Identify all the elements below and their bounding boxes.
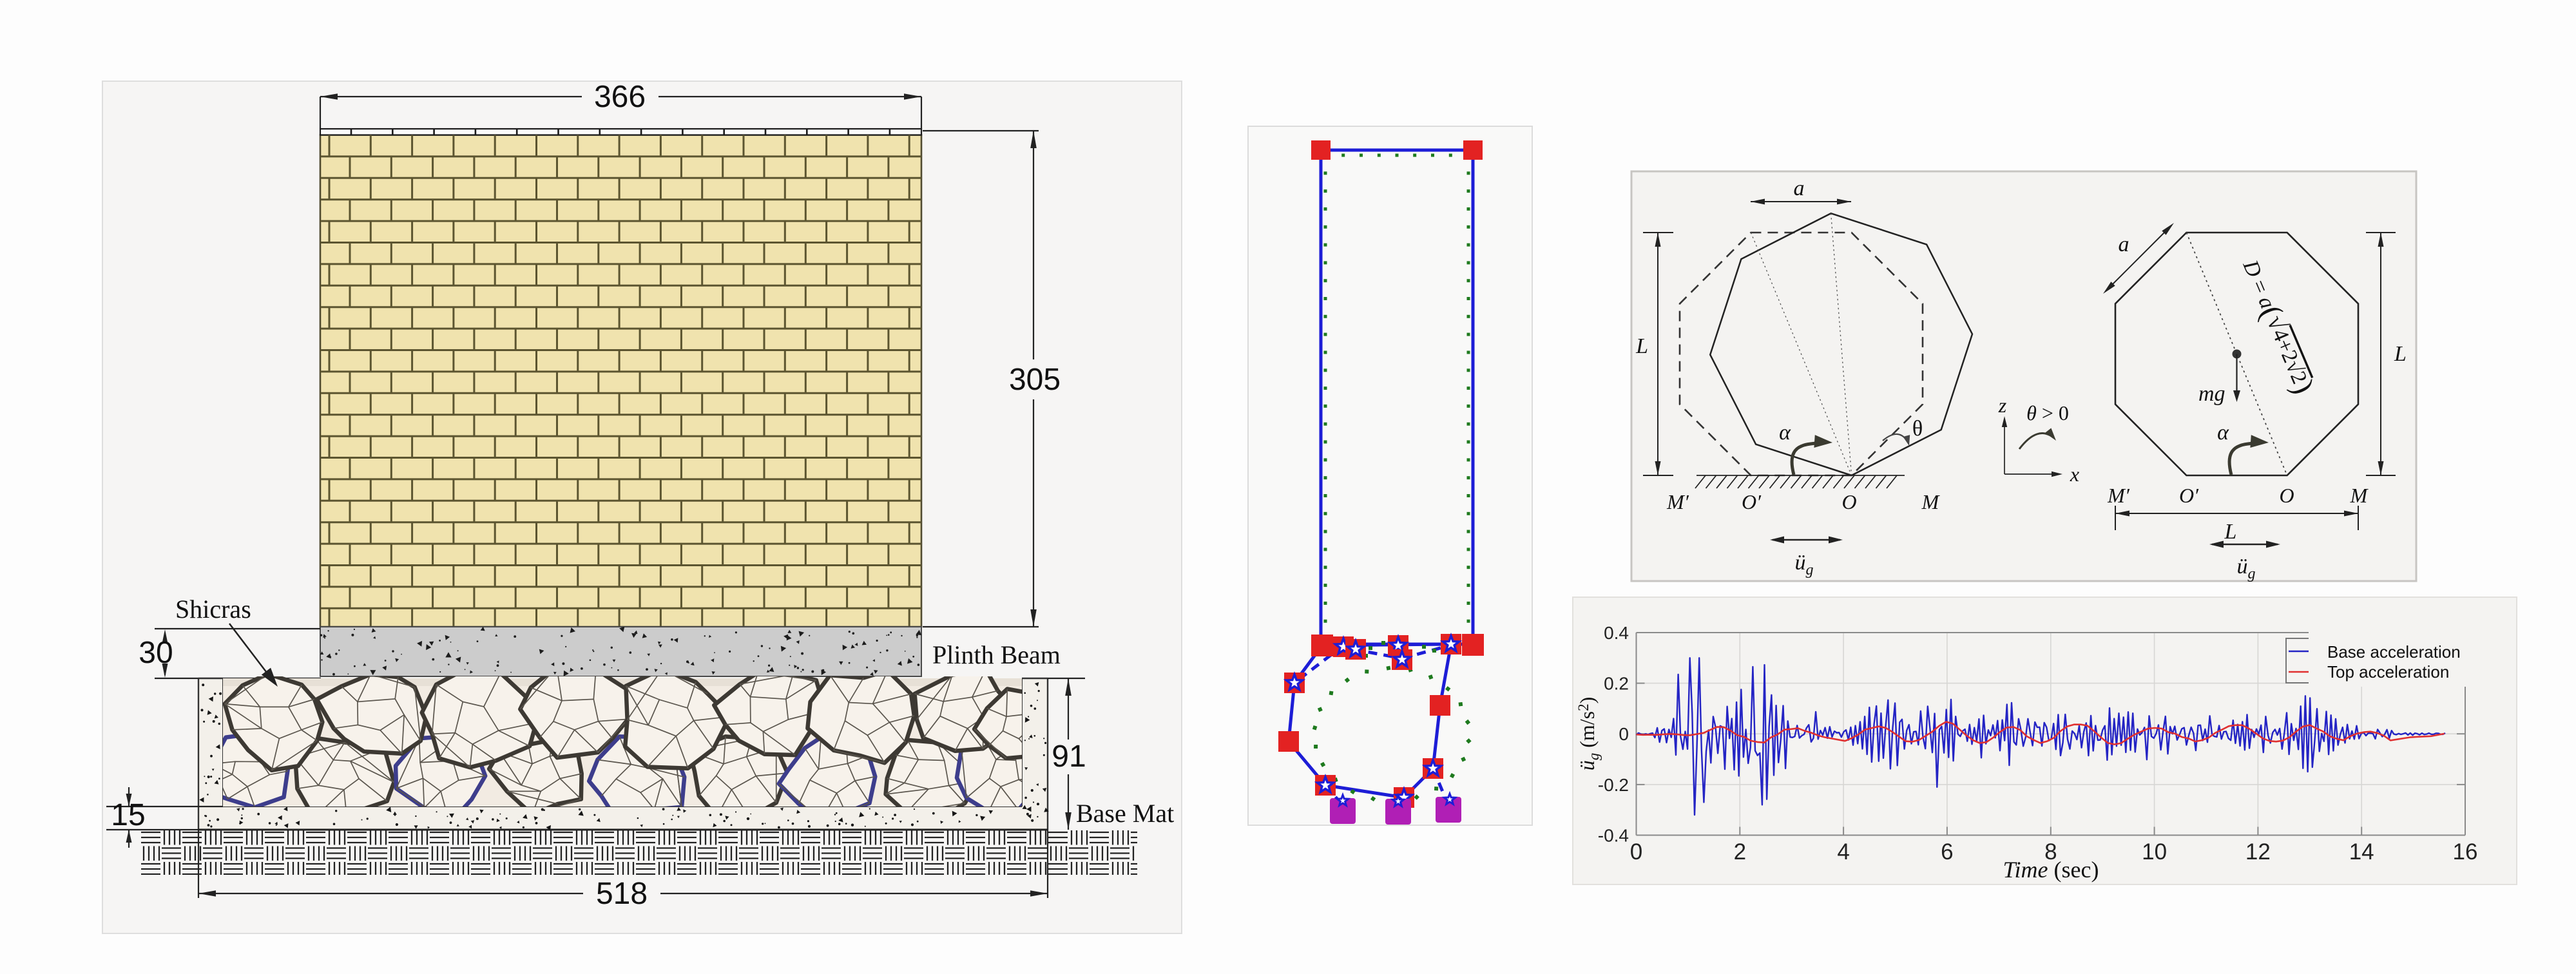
svg-text:0.4: 0.4 <box>1604 623 1629 643</box>
svg-text:Plinth Beam: Plinth Beam <box>932 640 1061 669</box>
svg-text:6: 6 <box>1941 839 1953 864</box>
svg-text:θ: θ <box>1912 417 1923 441</box>
svg-text:M: M <box>2350 484 2369 507</box>
svg-text:O: O <box>1841 490 1856 513</box>
svg-text:Base Mat: Base Mat <box>1076 799 1174 828</box>
svg-text:518: 518 <box>596 877 648 911</box>
svg-text:Top acceleration: Top acceleration <box>2327 662 2449 682</box>
svg-text:O′: O′ <box>1742 490 1762 513</box>
svg-text:α: α <box>2217 421 2229 444</box>
svg-text:16: 16 <box>2453 839 2478 864</box>
svg-text:0: 0 <box>1619 724 1629 744</box>
svg-text:L: L <box>2224 520 2237 544</box>
svg-text:305: 305 <box>1009 363 1061 397</box>
svg-text:Shicras: Shicras <box>175 595 251 624</box>
svg-text:Base acceleration: Base acceleration <box>2327 642 2461 662</box>
svg-text:M: M <box>1921 490 1941 513</box>
svg-text:2: 2 <box>1734 839 1746 864</box>
svg-text:L: L <box>2394 342 2407 366</box>
svg-text:x: x <box>2070 463 2079 486</box>
svg-text:-0.2: -0.2 <box>1598 775 1629 795</box>
svg-text:a: a <box>2119 233 2129 256</box>
svg-text:30: 30 <box>139 636 173 670</box>
svg-text:M′: M′ <box>2107 484 2130 507</box>
svg-text:-0.4: -0.4 <box>1598 826 1629 846</box>
svg-text:mg: mg <box>2198 382 2225 406</box>
svg-text:10: 10 <box>2142 839 2167 864</box>
svg-text:z: z <box>1998 394 2007 417</box>
svg-text:0: 0 <box>1630 839 1642 864</box>
svg-text:a: a <box>1794 177 1805 200</box>
svg-text:366: 366 <box>594 80 646 114</box>
svg-text:L: L <box>1635 334 1648 358</box>
svg-text:Time (sec): Time (sec) <box>2003 857 2099 883</box>
svg-text:θ > 0: θ > 0 <box>2026 401 2069 425</box>
svg-text:91: 91 <box>1052 740 1086 774</box>
svg-text:O′: O′ <box>2179 484 2199 507</box>
svg-text:α: α <box>1779 421 1791 444</box>
svg-text:4: 4 <box>1837 839 1849 864</box>
svg-text:14: 14 <box>2349 839 2374 864</box>
svg-text:12: 12 <box>2245 839 2271 864</box>
svg-text:M′: M′ <box>1666 490 1689 513</box>
svg-text:0.2: 0.2 <box>1604 674 1629 694</box>
svg-text:15: 15 <box>111 798 145 832</box>
svg-text:O: O <box>2279 484 2294 507</box>
